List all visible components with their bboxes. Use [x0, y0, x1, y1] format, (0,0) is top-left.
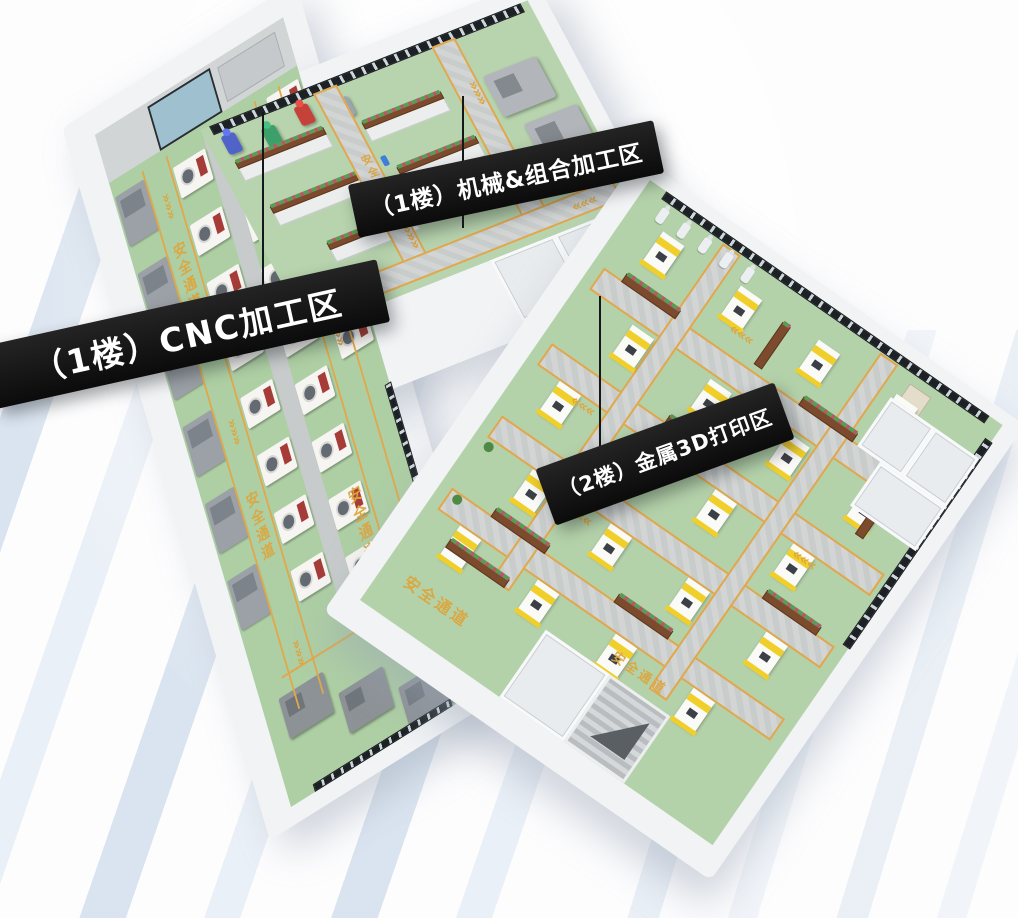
printer-screen [625, 344, 637, 356]
heavy-machine [278, 672, 334, 740]
printer-screen [686, 707, 698, 719]
heavy-machine-panel [345, 686, 365, 711]
cnc-machine [257, 436, 298, 487]
cnc-machine-accent [318, 372, 330, 394]
heavy-machine [338, 666, 394, 734]
cnc-machine-accent [263, 385, 275, 407]
planter-plants [782, 321, 791, 329]
cnc-machine-window [179, 164, 197, 189]
printer-screen [552, 401, 564, 413]
factory-3d-scene: 安全通道安全通道安全通道««««««««««««««« 安全通道««««««««… [0, 0, 1018, 918]
humanoid-robot [675, 221, 692, 240]
side-machine-top [210, 495, 236, 525]
printer-screen [530, 599, 542, 611]
printer-screen [681, 597, 693, 609]
cnc-machine-window [280, 509, 298, 534]
cnc-machine [173, 148, 214, 199]
cnc-machine-window [301, 381, 319, 406]
printer-screen [733, 305, 745, 317]
cnc-machine [311, 422, 352, 473]
printer-screen [781, 453, 793, 465]
printer-screen [655, 251, 667, 263]
stair-void [590, 699, 650, 760]
cnc-machine-window [263, 452, 281, 477]
cnc-machine [240, 379, 281, 430]
printer-screen [759, 651, 771, 663]
floor-chevron-arrows: ««« [157, 190, 179, 224]
metal-3d-printer [798, 340, 840, 385]
cnc-machine-window [246, 394, 264, 419]
metal-3d-printer [642, 231, 684, 276]
cnc-machine-accent [297, 501, 309, 523]
cnc-machine [190, 206, 231, 257]
humanoid-robot [697, 236, 714, 255]
printer-screen [708, 509, 720, 521]
flower-planter [754, 322, 791, 370]
machine-door [494, 73, 523, 99]
printer-screen [525, 489, 537, 501]
side-machine-top [187, 419, 213, 449]
cnc-machine-accent [196, 155, 208, 177]
floor-marking-text: 安全通道 [399, 569, 475, 632]
floor-chevron-arrows: ««« [223, 416, 245, 450]
printer-screen [811, 359, 823, 371]
cnc-machine-accent [280, 443, 292, 465]
humanoid-robot [739, 266, 756, 285]
cnc-machine-window [317, 438, 335, 463]
cnc-machine [274, 494, 315, 545]
heavy-machine-panel [405, 681, 425, 706]
printer-screen [603, 543, 615, 555]
cnc-machine-window [196, 221, 214, 246]
side-machine-top [232, 572, 258, 602]
side-machine-top [120, 188, 146, 218]
side-machine-top [142, 265, 168, 295]
floor-chevron-arrows: ««« [288, 637, 310, 671]
cnc-machine [290, 551, 331, 602]
humanoid-robot [654, 207, 671, 226]
cnc-machine-accent [213, 213, 225, 235]
cnc-machine-accent [334, 429, 346, 451]
cnc-machine-window [296, 567, 314, 592]
cnc-machine-accent [313, 558, 325, 580]
